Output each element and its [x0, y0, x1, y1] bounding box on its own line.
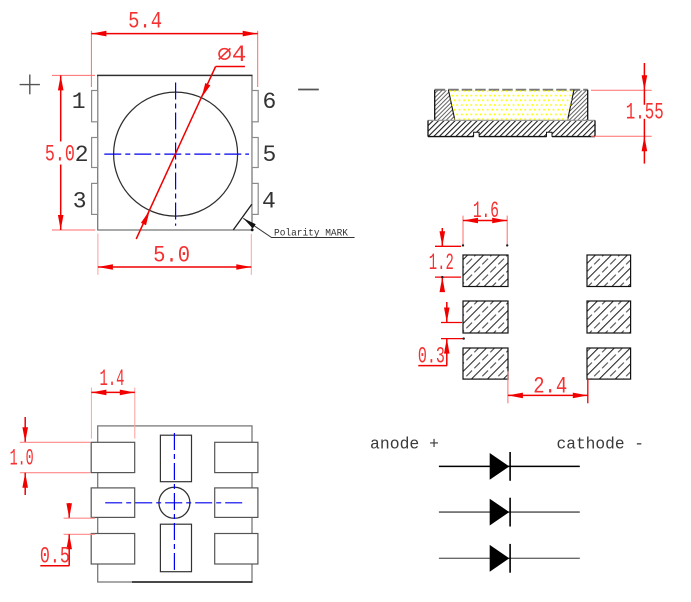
svg-text:1.55: 1.55	[626, 100, 664, 126]
svg-text:1.6: 1.6	[473, 198, 499, 224]
svg-text:Polarity MARK: Polarity MARK	[274, 228, 349, 240]
svg-text:5.4: 5.4	[128, 9, 162, 35]
svg-text:2: 2	[75, 142, 89, 168]
svg-text:anode +: anode +	[370, 436, 439, 455]
svg-text:∅4: ∅4	[217, 42, 246, 68]
svg-text:5.0: 5.0	[153, 242, 190, 268]
svg-text:2.4: 2.4	[533, 374, 567, 400]
svg-text:1: 1	[72, 89, 86, 115]
svg-text:0.3: 0.3	[418, 343, 445, 369]
svg-text:cathode -: cathode -	[557, 436, 645, 455]
svg-text:0.5: 0.5	[40, 543, 70, 569]
svg-text:3: 3	[73, 188, 87, 214]
svg-text:1.4: 1.4	[100, 366, 125, 392]
svg-text:6: 6	[263, 89, 277, 115]
svg-text:1.2: 1.2	[429, 250, 454, 276]
svg-text:5: 5	[263, 142, 277, 168]
svg-text:1.0: 1.0	[10, 445, 34, 471]
svg-text:5.0: 5.0	[45, 141, 75, 167]
svg-text:4: 4	[262, 188, 276, 214]
